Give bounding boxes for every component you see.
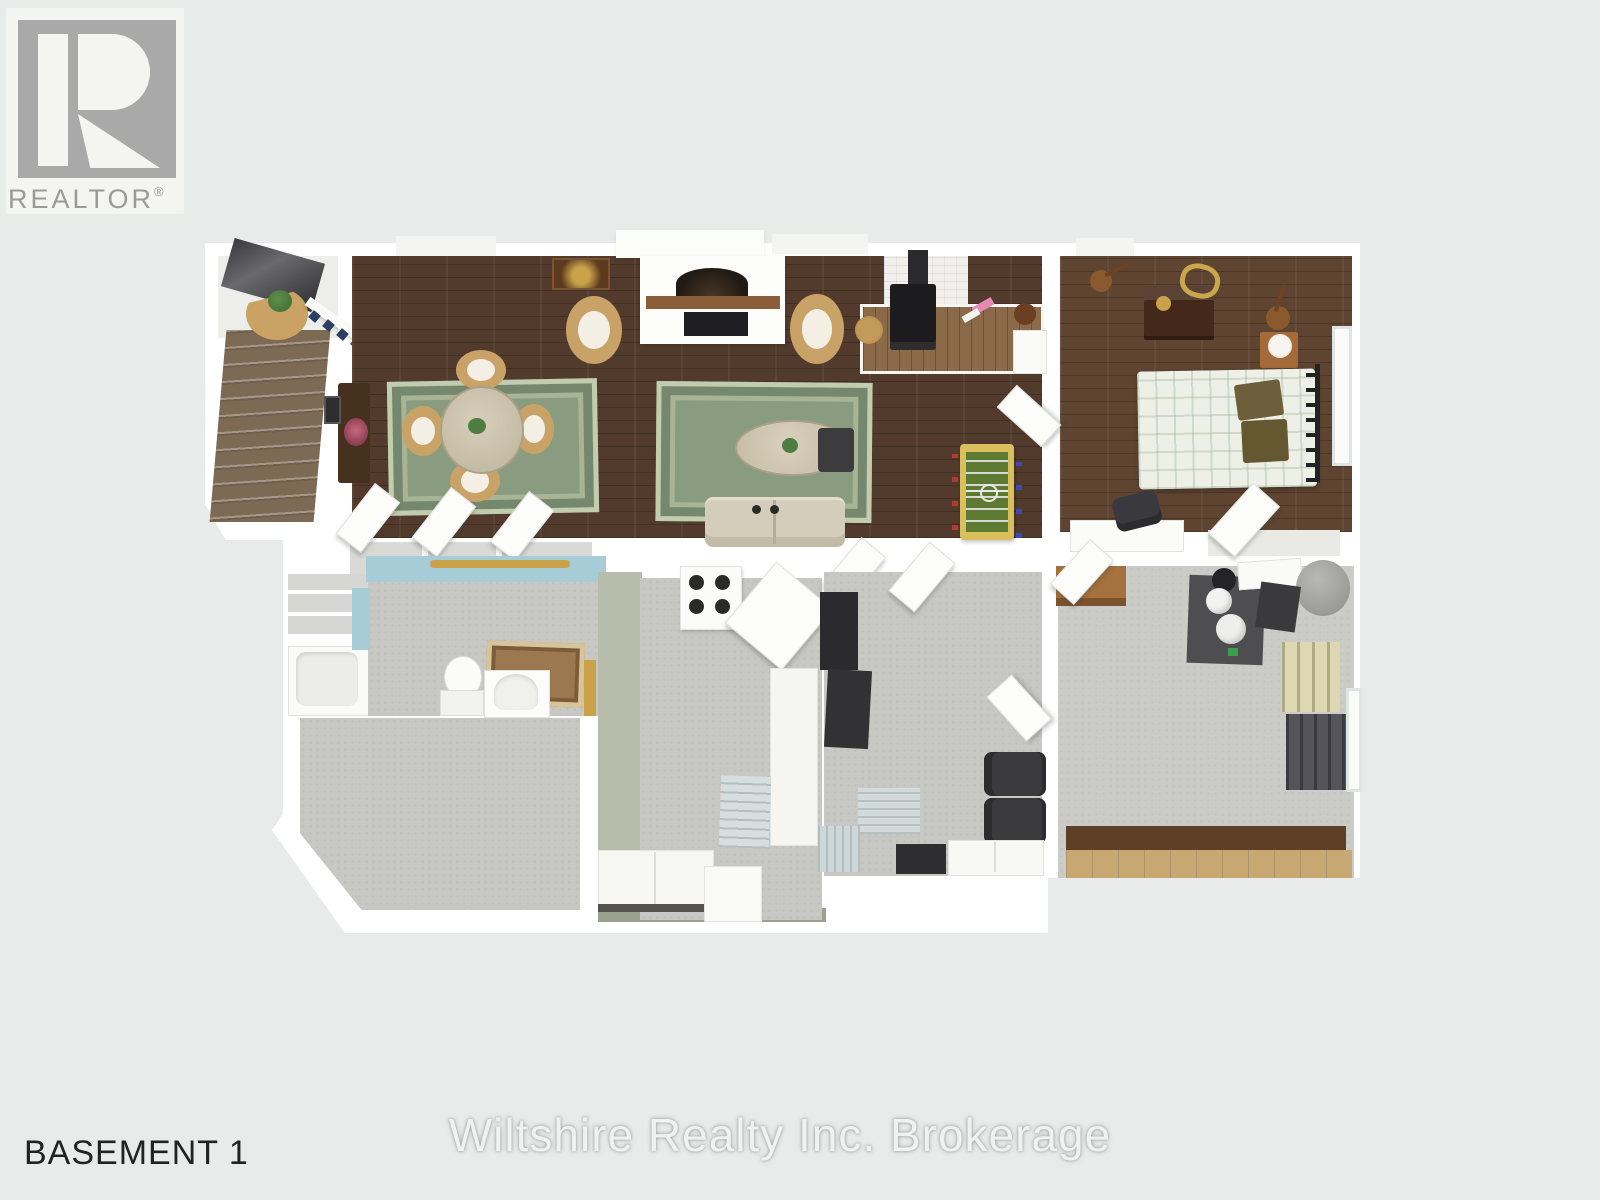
bed-pillow: [1234, 379, 1285, 421]
baluster: [336, 328, 349, 341]
dark-unit: [1255, 581, 1301, 632]
table-lamp: [1268, 334, 1292, 358]
planter-pot: [1014, 303, 1036, 325]
burner: [715, 599, 730, 614]
ottoman: [818, 428, 854, 472]
bathroom-accent-wall: [352, 588, 370, 650]
burner: [689, 575, 704, 590]
white-cylinder: [1206, 588, 1232, 614]
indicator-light: [1228, 648, 1238, 656]
potted-plant: [268, 290, 292, 312]
kitchen-rug: [719, 775, 771, 849]
black-cabinet: [820, 592, 858, 670]
armchair: [566, 296, 622, 364]
work-bench: [1066, 826, 1346, 850]
bathtub-basin: [296, 652, 358, 706]
bed-headboard: [1306, 364, 1320, 482]
firewood-basket: [855, 316, 883, 344]
armchair: [790, 294, 844, 364]
laundry-cabinets: [598, 850, 714, 910]
towel-bar: [430, 560, 570, 568]
bedroom-window: [1332, 326, 1352, 466]
white-cylinder: [1216, 614, 1246, 644]
chimney-bumpout: [616, 230, 764, 258]
stairs: [210, 330, 331, 522]
logo-r-bowl: [78, 34, 150, 110]
realtor-logo: REALTOR®: [6, 8, 184, 214]
logo-r-leg: [78, 114, 160, 168]
wood-stove: [890, 284, 936, 350]
brokerage-watermark: Wiltshire Realty Inc. Brokerage: [0, 1108, 1560, 1162]
sofa-pillow: [770, 505, 779, 514]
blue-dresser: [818, 826, 860, 872]
den-rug: [858, 788, 920, 834]
window: [772, 234, 868, 254]
baluster: [322, 319, 335, 332]
mantel-shelf: [646, 296, 780, 309]
wall-art-frame: [324, 396, 341, 424]
toilet-tank: [440, 690, 484, 716]
baluster: [308, 310, 321, 323]
dining-chair: [402, 406, 444, 456]
kitchen-counter: [770, 668, 818, 846]
table-plant: [468, 418, 486, 434]
bed-pillow: [1241, 419, 1289, 463]
flower-vase: [344, 418, 368, 446]
foosball-handles-blue: [1016, 462, 1022, 538]
water-heater: [1296, 560, 1350, 616]
tv-screen: [684, 312, 748, 336]
cream-shelf: [1282, 642, 1340, 712]
realtor-text: REALTOR: [8, 184, 154, 214]
cabinet-divider: [654, 852, 656, 906]
floorplan-render: REALTOR®: [0, 0, 1600, 1200]
den-armchair: [984, 798, 1046, 844]
window: [1076, 238, 1134, 256]
coffee-table-plant: [782, 438, 798, 453]
cabinet-divider: [994, 842, 996, 872]
storage-cabinet: [1013, 330, 1047, 374]
den-cabinets: [948, 840, 1044, 876]
foosball-center-circle: [980, 484, 998, 502]
vanity-sink: [494, 674, 538, 710]
logo-r-stem: [38, 34, 68, 166]
freezer-box: [704, 866, 762, 922]
registered-mark: ®: [154, 184, 164, 199]
dresser-hat: [1156, 296, 1171, 311]
bed-duvet: [1137, 368, 1317, 489]
burner: [715, 575, 730, 590]
realtor-r-icon: [18, 20, 176, 178]
gray-cabinet: [1286, 714, 1354, 790]
wood-floor-strip: [1066, 850, 1352, 878]
wall-art-gold: [584, 660, 596, 716]
dark-chest: [896, 844, 946, 874]
utility-window: [1346, 688, 1362, 792]
foosball-handles-red: [952, 454, 958, 530]
dining-chair: [456, 350, 506, 390]
rec-room-floor: [300, 718, 580, 910]
realtor-wordmark: REALTOR®: [8, 184, 184, 215]
window: [396, 236, 496, 256]
black-desk: [824, 669, 872, 749]
wall-art-tree: [552, 258, 610, 290]
den-armchair: [984, 752, 1046, 796]
sofa-pillow: [752, 505, 761, 514]
kitchen-dark-base: [598, 904, 712, 912]
burner: [689, 599, 704, 614]
